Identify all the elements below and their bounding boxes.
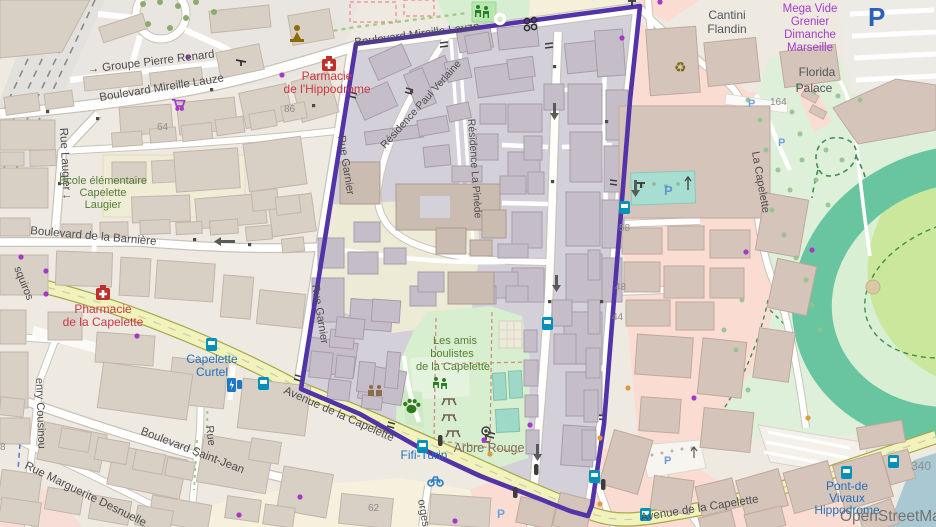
svg-text:86: 86 [284, 104, 296, 115]
svg-text:Fifi-Turin: Fifi-Turin [401, 448, 448, 462]
svg-text:Marseille: Marseille [787, 42, 833, 54]
svg-text:P: P [778, 137, 785, 149]
svg-text:de l'Hippodrome: de l'Hippodrome [283, 82, 370, 96]
svg-text:de la Capelette: de la Capelette [63, 315, 144, 329]
svg-text:Laugier: Laugier [85, 199, 122, 211]
svg-text:P: P [497, 507, 505, 521]
svg-text:Curtel: Curtel [196, 365, 228, 379]
svg-text:Florida: Florida [799, 65, 836, 79]
svg-text:Capelette: Capelette [79, 187, 126, 199]
svg-text:8: 8 [0, 442, 6, 453]
svg-text:64: 64 [157, 122, 169, 133]
svg-text:164: 164 [770, 97, 787, 108]
svg-text:enry Cousinou: enry Cousinou [33, 378, 47, 449]
svg-text:44: 44 [612, 312, 624, 323]
svg-text:Grenier: Grenier [791, 16, 830, 28]
svg-text:OpenStreetMap: OpenStreetMap [840, 508, 936, 525]
svg-text:Arbre Rouge: Arbre Rouge [454, 441, 525, 455]
svg-text:boulistes: boulistes [430, 348, 474, 360]
svg-text:♻: ♻ [674, 59, 687, 75]
svg-text:Capelette: Capelette [186, 352, 238, 366]
svg-text:Flandin: Flandin [707, 22, 746, 36]
svg-text:Dimanche: Dimanche [784, 29, 836, 41]
svg-text:de la Capelette: de la Capelette [416, 361, 490, 373]
svg-text:48: 48 [615, 282, 627, 293]
svg-text:P: P [868, 2, 885, 32]
svg-text:École élémentaire: École élémentaire [59, 174, 147, 187]
svg-text:62: 62 [368, 503, 380, 514]
svg-text:Les amis: Les amis [433, 335, 478, 347]
svg-text:Mega Vide: Mega Vide [783, 3, 838, 15]
svg-text:P: P [664, 455, 671, 467]
svg-text:Cantini: Cantini [708, 8, 745, 22]
svg-text:340: 340 [911, 459, 931, 473]
svg-text:P: P [748, 98, 755, 110]
svg-text:Pharmacie: Pharmacie [74, 302, 132, 316]
svg-text:58: 58 [619, 223, 631, 234]
svg-text:Palace: Palace [796, 81, 833, 95]
svg-text:P: P [664, 183, 673, 198]
svg-text:Parmacie: Parmacie [302, 69, 353, 83]
svg-text:Rue: Rue [203, 425, 217, 446]
